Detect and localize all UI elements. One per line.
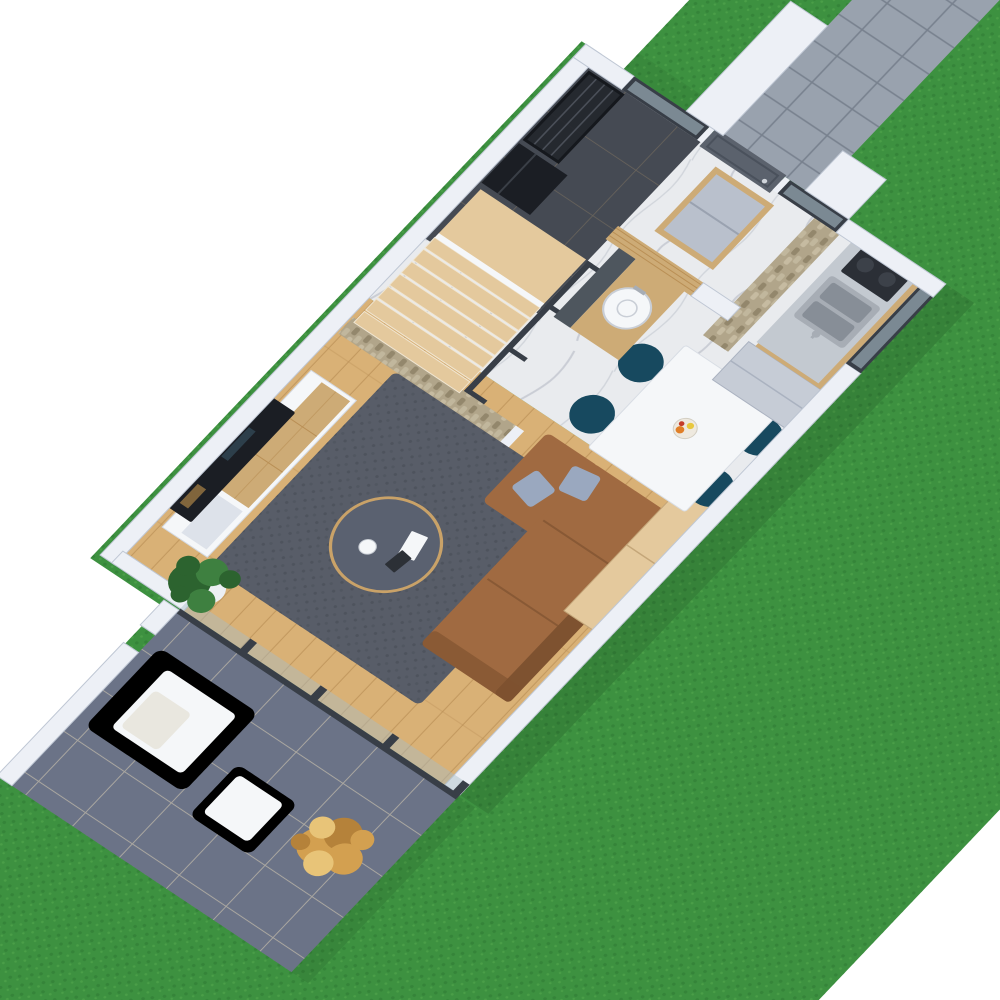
plot — [0, 0, 1000, 1000]
scene-svg — [0, 0, 1000, 1000]
floor-plan-render — [0, 0, 1000, 1000]
